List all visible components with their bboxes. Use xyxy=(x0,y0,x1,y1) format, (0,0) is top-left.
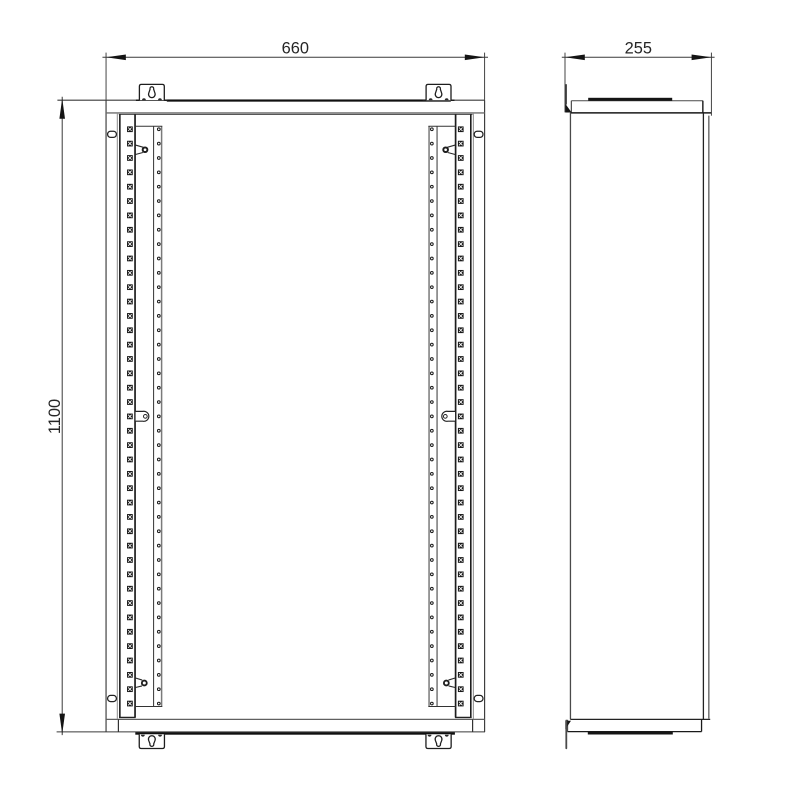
svg-text:660: 660 xyxy=(282,40,309,58)
svg-text:1100: 1100 xyxy=(46,399,64,434)
svg-text:255: 255 xyxy=(625,40,652,58)
